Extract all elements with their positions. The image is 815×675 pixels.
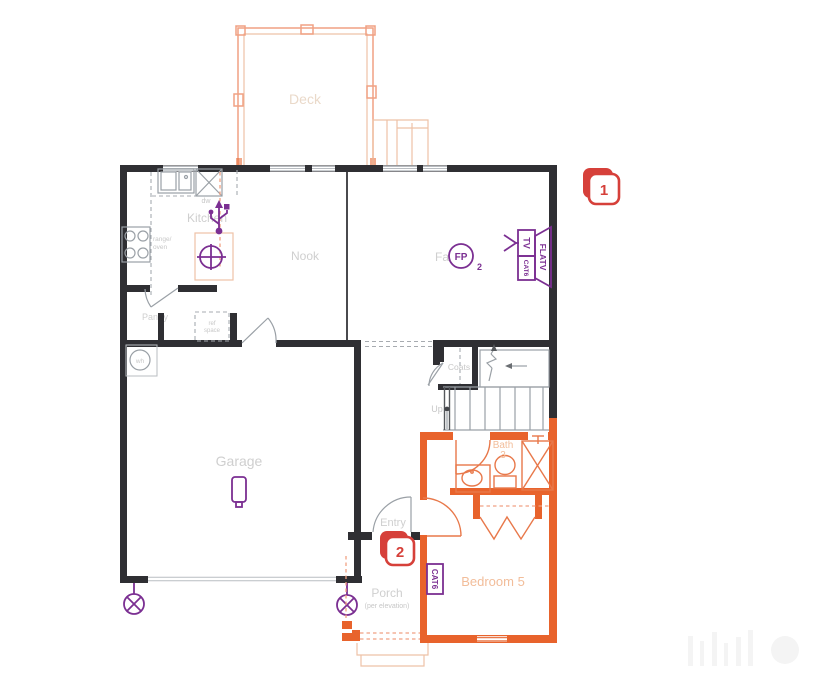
nook-label: Nook <box>291 249 320 263</box>
porch-label: Porch <box>371 586 402 600</box>
entry: Entry <box>373 497 411 532</box>
fireplace-symbol: FP 2 <box>449 244 482 272</box>
bedroom-cat6-label: CAT6 <box>430 569 439 590</box>
fridge-space: ref space <box>195 312 229 341</box>
fireplace-number: 2 <box>477 262 482 272</box>
bath-number: 3 <box>500 450 506 461</box>
garage: Garage wh <box>124 345 357 615</box>
cat6-label: CAT6 <box>522 260 529 277</box>
range-label-1: range/ <box>153 236 172 243</box>
marker-2[interactable]: 2 <box>380 531 414 565</box>
light-fixture-icon <box>337 583 357 615</box>
kitchen: Kitchen dw range/ oven <box>122 169 276 343</box>
corner-cabinet <box>196 169 237 196</box>
up-label: Up <box>431 404 443 414</box>
dishwasher-label: dw <box>202 198 212 205</box>
fridge-label-1: ref <box>208 321 215 327</box>
family-label: Fa <box>435 250 449 264</box>
nook: Nook <box>291 172 347 340</box>
fireplace-label: FP <box>455 252 468 263</box>
floor-plan: Deck <box>0 0 815 675</box>
marker-1-label: 1 <box>600 182 608 199</box>
deck-stairs <box>373 120 428 165</box>
bedroom-suite: Bath 3 Bedroom 5 CAT6 <box>420 418 557 643</box>
flatv-label: FLATV <box>538 244 548 271</box>
deck-label: Deck <box>289 91 322 107</box>
tv-symbol: TV CAT6 FLATV <box>504 227 551 287</box>
garage-opener-symbol <box>232 477 246 507</box>
pantry: Pantry ref space <box>127 285 276 343</box>
light-fixture-icon <box>124 583 144 614</box>
coats-label: Coats <box>448 362 470 372</box>
stairs: Up <box>431 344 549 430</box>
deck: Deck <box>234 25 428 166</box>
watermark <box>688 630 799 666</box>
porch-note: (per elevation) <box>365 603 410 610</box>
bedroom-label: Bedroom 5 <box>461 574 525 589</box>
marker-1[interactable]: 1 <box>583 168 619 204</box>
island-light-symbol <box>197 244 226 270</box>
cat6-wall-symbol: CAT6 <box>427 564 443 594</box>
entry-label: Entry <box>380 517 406 529</box>
fridge-label-2: space <box>204 328 221 334</box>
tv-label: TV <box>522 237 532 249</box>
garage-label: Garage <box>216 453 263 469</box>
water-heater-symbol: wh <box>126 345 157 376</box>
family-room: Fa FP 2 TV CAT6 FLATV <box>435 227 551 287</box>
marker-2-label: 2 <box>396 544 404 561</box>
shower <box>522 432 553 490</box>
range-label-2: oven <box>153 244 167 251</box>
exterior-walls <box>120 165 557 583</box>
pantry-label: Pantry <box>142 312 169 322</box>
bedroom-closet <box>473 495 549 539</box>
kitchen-sink <box>158 169 194 193</box>
water-heater-label: wh <box>135 358 145 365</box>
range-oven: range/ oven <box>122 227 172 262</box>
